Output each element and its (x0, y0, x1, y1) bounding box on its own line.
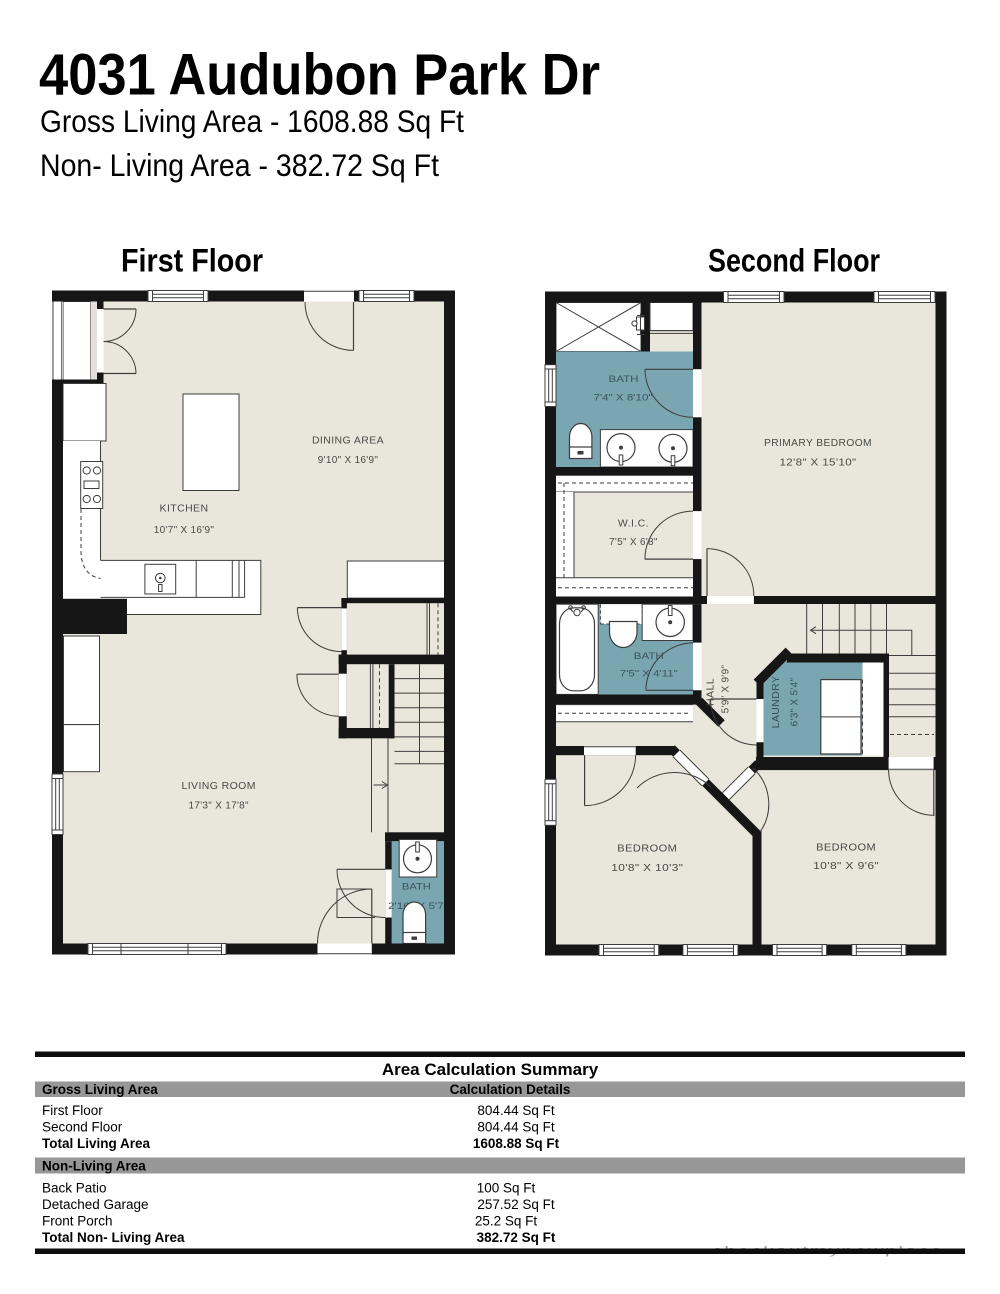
svg-text:Total Non- Living Area: Total Non- Living Area (42, 1230, 185, 1245)
svg-text:804.44 Sq Ft: 804.44 Sq Ft (477, 1120, 555, 1135)
svg-text:804.44 Sq Ft: 804.44 Sq Ft (477, 1103, 555, 1118)
svg-text:W.I.C.: W.I.C. (618, 517, 649, 529)
svg-text:12'8" X 15'10": 12'8" X 15'10" (780, 458, 857, 469)
svg-text:LIVING ROOM: LIVING ROOM (181, 780, 255, 792)
svg-text:Non-Living Area: Non-Living Area (42, 1159, 146, 1174)
svg-text:Non- Living Area - 382.72 Sq F: Non- Living Area - 382.72 Sq Ft (40, 147, 439, 183)
svg-text:4031 Audubon Park Dr: 4031 Audubon Park Dr (39, 43, 600, 108)
svg-text:Area Calculation Summary: Area Calculation Summary (382, 1060, 599, 1079)
svg-text:Detached Garage: Detached Garage (42, 1197, 149, 1212)
svg-text:PRIMARY BEDROOM: PRIMARY BEDROOM (764, 437, 872, 449)
svg-text:9'10" X 16'9": 9'10" X 16'9" (318, 455, 379, 466)
svg-text:Back Patio: Back Patio (42, 1181, 107, 1196)
svg-text:6'3" X 5'4": 6'3" X 5'4" (790, 678, 801, 727)
svg-text:LAUNDRY: LAUNDRY (770, 676, 782, 729)
svg-text:25.2 Sq Ft: 25.2 Sq Ft (475, 1214, 538, 1229)
svg-text:1608.88 Sq Ft: 1608.88 Sq Ft (473, 1136, 560, 1151)
svg-text:17'3" X 17'8": 17'3" X 17'8" (188, 801, 249, 812)
svg-text:BEDROOM: BEDROOM (617, 843, 677, 855)
svg-text:Second Floor: Second Floor (708, 243, 880, 279)
svg-text:Total Living Area: Total Living Area (42, 1136, 151, 1151)
svg-text:7'5" X 6'8": 7'5" X 6'8" (609, 537, 658, 548)
svg-text:HALL: HALL (705, 678, 717, 706)
svg-text:DINING AREA: DINING AREA (312, 435, 384, 447)
svg-text:Second Floor: Second Floor (42, 1120, 123, 1135)
svg-text:Gross Living Area: Gross Living Area (42, 1082, 158, 1097)
svg-text:257.52 Sq Ft: 257.52 Sq Ft (477, 1197, 555, 1212)
svg-text:100 Sq Ft: 100 Sq Ft (477, 1181, 536, 1196)
svg-text:5'9" X 9'9": 5'9" X 9'9" (721, 665, 732, 714)
svg-text:382.72 Sq Ft: 382.72 Sq Ft (477, 1230, 556, 1245)
svg-text:10'8" X 10'3": 10'8" X 10'3" (611, 863, 683, 874)
svg-text:10'8" X 9'6": 10'8" X 9'6" (813, 861, 879, 872)
svg-text:10'7" X 16'9": 10'7" X 16'9" (154, 525, 215, 536)
svg-text:7'4" X 8'10": 7'4" X 8'10" (594, 393, 653, 403)
svg-text:KITCHEN: KITCHEN (160, 503, 209, 515)
svg-text:Gross Living Area - 1608.88 Sq: Gross Living Area - 1608.88 Sq Ft (40, 103, 464, 139)
svg-text:BATH: BATH (634, 651, 664, 662)
svg-text:BEDROOM: BEDROOM (816, 842, 876, 854)
svg-text:Calculation Details: Calculation Details (450, 1082, 571, 1097)
svg-text:BATH: BATH (402, 882, 431, 892)
svg-text:BATH: BATH (609, 374, 639, 385)
svg-text:First Floor: First Floor (42, 1103, 103, 1118)
svg-text:First Floor: First Floor (121, 243, 263, 279)
svg-text:Front Porch: Front Porch (42, 1214, 113, 1229)
